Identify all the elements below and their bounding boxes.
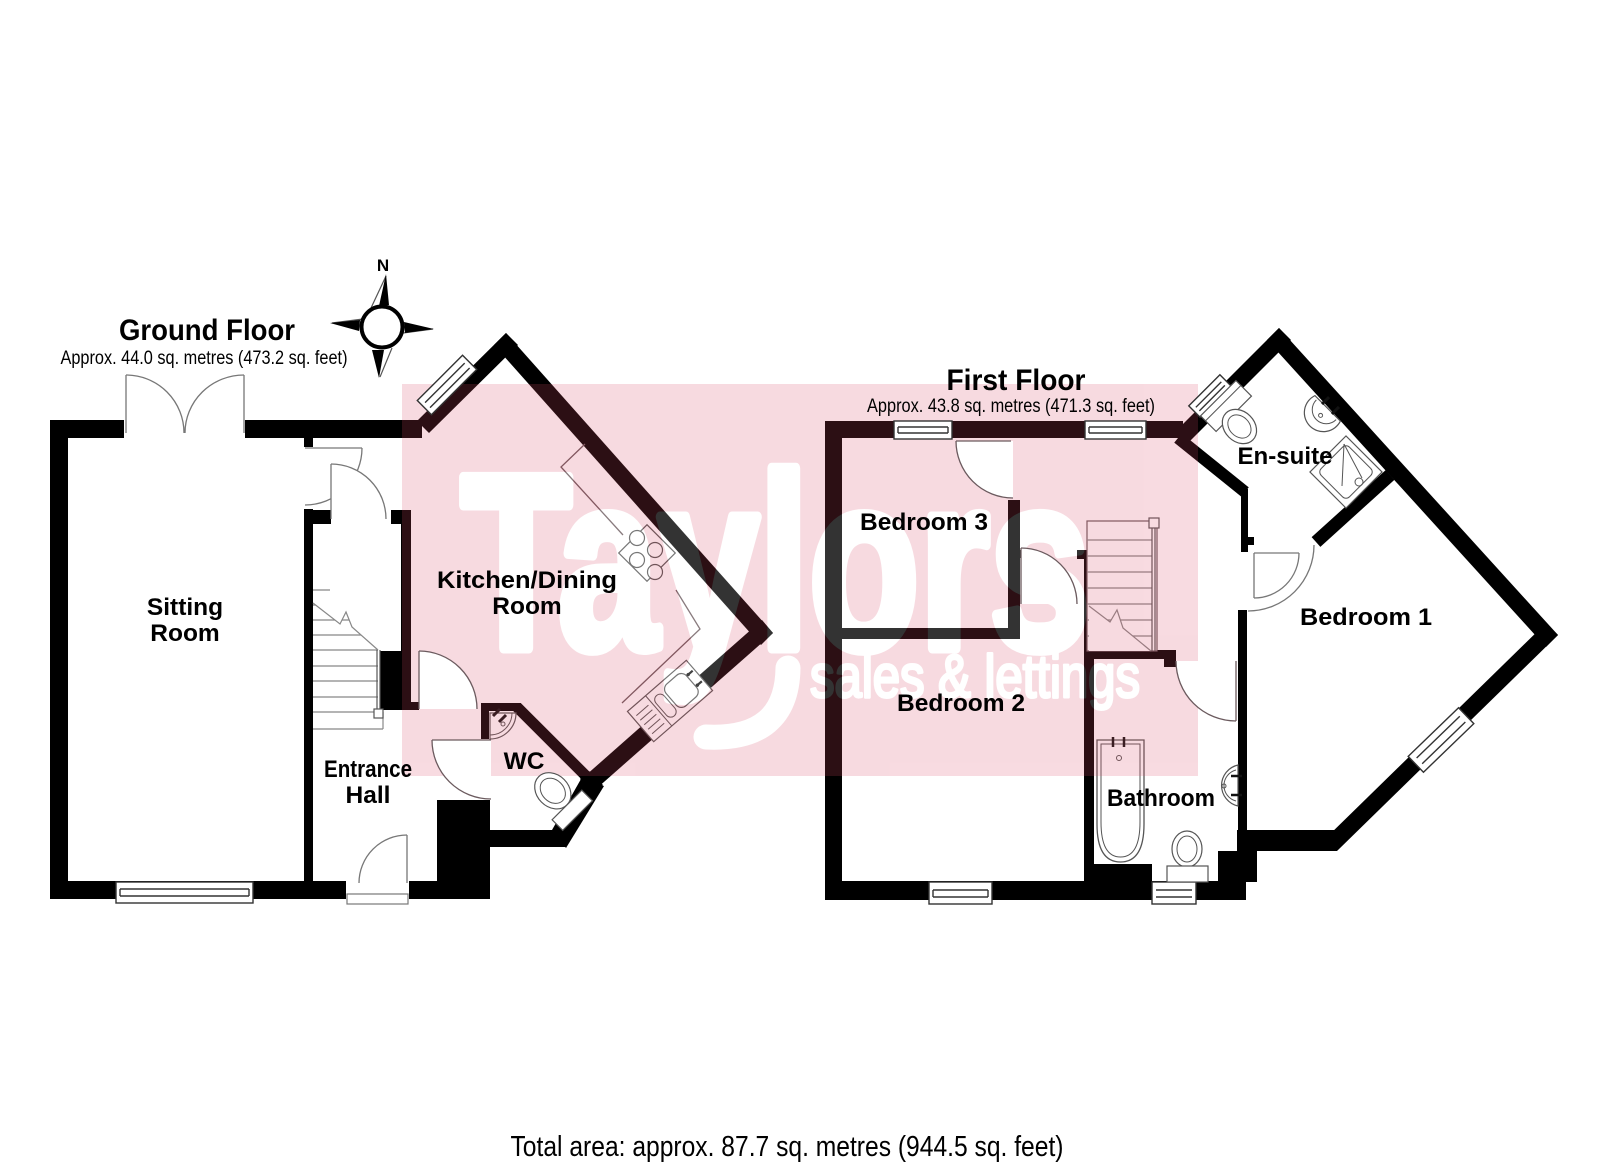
svg-text:Sitting: Sitting bbox=[147, 594, 223, 621]
svg-text:Total area: approx. 87.7 sq. m: Total area: approx. 87.7 sq. metres (944… bbox=[511, 1131, 1064, 1163]
svg-text:Room: Room bbox=[150, 620, 219, 647]
svg-text:Bedroom 3: Bedroom 3 bbox=[860, 509, 988, 536]
svg-text:Entrance: Entrance bbox=[324, 756, 412, 783]
svg-text:Bathroom: Bathroom bbox=[1107, 785, 1215, 812]
svg-text:Bedroom 1: Bedroom 1 bbox=[1300, 604, 1432, 631]
svg-text:WC: WC bbox=[504, 748, 545, 775]
svg-text:Room: Room bbox=[492, 593, 561, 620]
svg-text:Kitchen/Dining: Kitchen/Dining bbox=[437, 567, 617, 594]
svg-text:Approx. 43.8 sq. metres (471.3: Approx. 43.8 sq. metres (471.3 sq. feet) bbox=[867, 396, 1155, 417]
svg-text:First Floor: First Floor bbox=[947, 364, 1086, 397]
svg-text:N: N bbox=[377, 256, 389, 275]
svg-text:Bedroom 2: Bedroom 2 bbox=[897, 690, 1025, 717]
svg-text:Ground Floor: Ground Floor bbox=[119, 314, 295, 347]
svg-text:En-suite: En-suite bbox=[1238, 443, 1333, 470]
svg-text:Hall: Hall bbox=[346, 782, 391, 809]
svg-text:Approx. 44.0 sq. metres (473.2: Approx. 44.0 sq. metres (473.2 sq. feet) bbox=[61, 348, 348, 369]
